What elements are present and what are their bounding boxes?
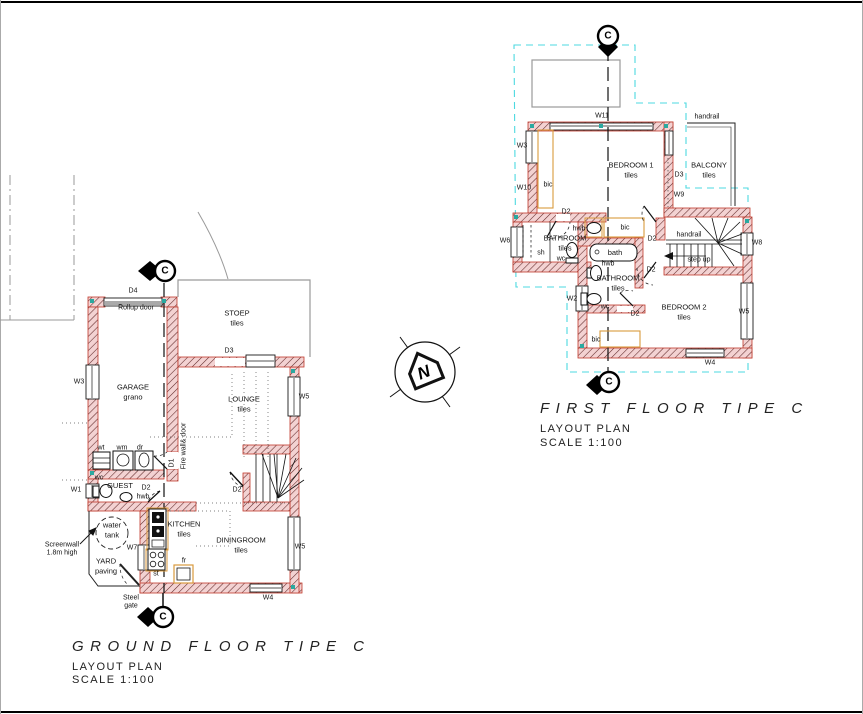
bic-bedroom2: [600, 331, 640, 347]
door-d2-bath2-gap: [617, 306, 633, 312]
wc1-tank: [566, 258, 578, 263]
wc2-tank: [581, 293, 587, 305]
laundry-appliances: [93, 451, 153, 470]
ff-junction-marks: [514, 124, 749, 348]
step-up-arrowhead: [664, 252, 673, 260]
roof-outline: [532, 60, 620, 107]
north-house-arrow: [404, 348, 444, 389]
window-w3-rect: [86, 365, 99, 399]
floorplan-linework: [0, 0, 863, 714]
hwb2-basin: [591, 266, 602, 281]
ff-section-markers: [586, 26, 619, 395]
yard-outline: [89, 511, 140, 586]
wc1-bowl: [567, 243, 578, 258]
gf-junction-marks: [90, 299, 295, 589]
wc2-bowl: [587, 294, 601, 305]
drawing-sheet: GROUND FLOOR TIPE C LAYOUT PLAN SCALE 1:…: [0, 0, 863, 714]
guest-basin: [120, 493, 132, 502]
driveway-curve: [198, 212, 228, 279]
bic-bedroom1: [538, 130, 553, 208]
bathroom2-fixtures: [581, 244, 637, 305]
ground-floor-plan: [62, 261, 310, 627]
guest-wc-fixtures: [93, 485, 132, 502]
gf-walls: [88, 297, 304, 593]
washing-trough: [93, 452, 110, 469]
stoep-outline: [178, 280, 310, 357]
hwb1-basin: [587, 223, 601, 234]
door-d3-gap: [215, 358, 245, 366]
first-floor-plan: [511, 26, 753, 395]
north-compass: [390, 337, 460, 407]
steel-gate-leaf: [120, 564, 139, 585]
toilet-bowl: [100, 485, 112, 498]
door-d2-bath1-gap: [556, 214, 570, 221]
screenwall-arrow: [80, 528, 96, 544]
water-tank-circle: [96, 517, 128, 549]
balcony-handrail: [687, 123, 735, 206]
kitchen-fixtures: [146, 508, 193, 583]
bic-center: [604, 218, 644, 237]
ff-stairs: [666, 218, 742, 267]
toilet-tank: [93, 486, 99, 497]
door-d1-gap: [167, 452, 178, 469]
